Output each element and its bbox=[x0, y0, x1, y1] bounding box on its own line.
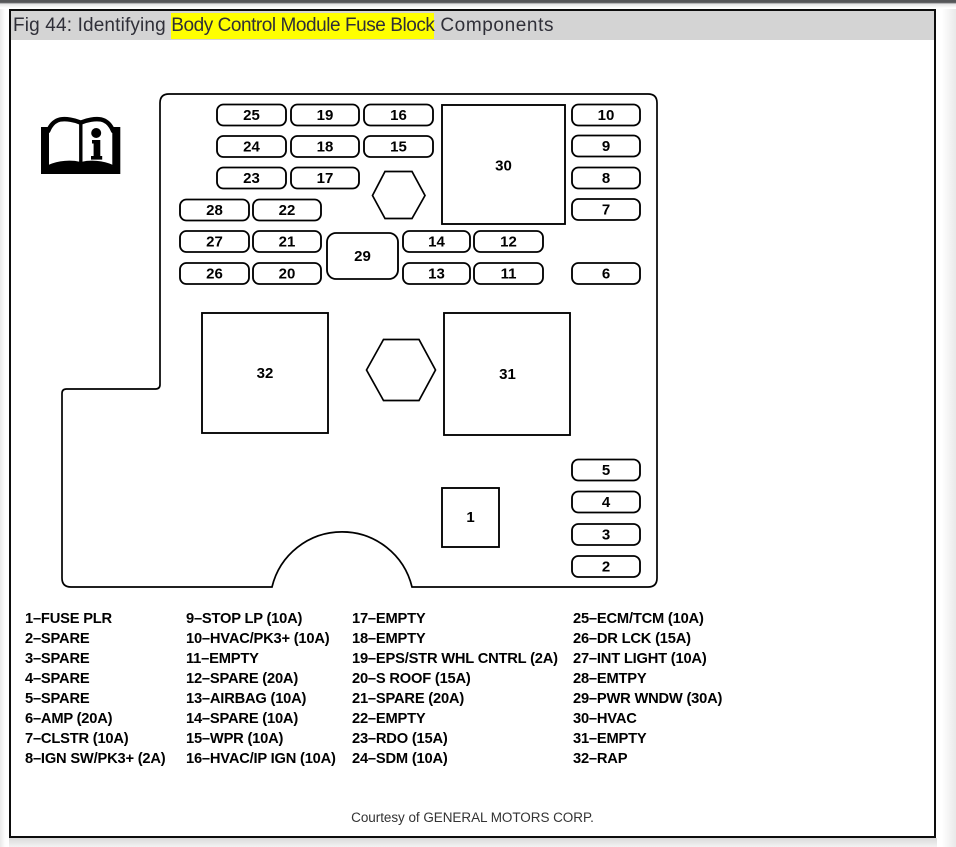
svg-text:23: 23 bbox=[243, 170, 260, 187]
svg-text:16: 16 bbox=[390, 107, 407, 124]
svg-text:8: 8 bbox=[602, 170, 610, 187]
svg-text:18: 18 bbox=[317, 139, 334, 156]
svg-text:17: 17 bbox=[317, 170, 334, 187]
svg-text:27: 27 bbox=[206, 234, 223, 251]
svg-text:28: 28 bbox=[206, 202, 223, 219]
svg-text:6: 6 bbox=[602, 266, 610, 283]
svg-text:10: 10 bbox=[598, 107, 615, 124]
svg-text:29: 29 bbox=[354, 248, 371, 265]
svg-text:9: 9 bbox=[602, 138, 610, 155]
svg-text:31: 31 bbox=[499, 366, 516, 383]
svg-text:22: 22 bbox=[279, 202, 296, 219]
svg-text:12: 12 bbox=[500, 234, 517, 251]
svg-text:32: 32 bbox=[257, 365, 274, 382]
svg-text:5: 5 bbox=[602, 462, 610, 479]
svg-text:1: 1 bbox=[466, 509, 474, 526]
svg-text:26: 26 bbox=[206, 266, 223, 283]
svg-text:20: 20 bbox=[279, 266, 296, 283]
svg-text:19: 19 bbox=[317, 107, 334, 124]
svg-text:13: 13 bbox=[428, 266, 445, 283]
svg-text:21: 21 bbox=[279, 234, 296, 251]
svg-text:7: 7 bbox=[602, 202, 610, 219]
svg-text:2: 2 bbox=[602, 559, 610, 576]
svg-text:14: 14 bbox=[428, 234, 445, 251]
svg-text:25: 25 bbox=[243, 107, 260, 124]
svg-text:4: 4 bbox=[602, 494, 611, 511]
svg-text:24: 24 bbox=[243, 139, 260, 156]
svg-text:11: 11 bbox=[501, 266, 517, 283]
svg-text:3: 3 bbox=[602, 527, 610, 544]
svg-text:15: 15 bbox=[390, 139, 407, 156]
svg-text:30: 30 bbox=[495, 158, 512, 175]
